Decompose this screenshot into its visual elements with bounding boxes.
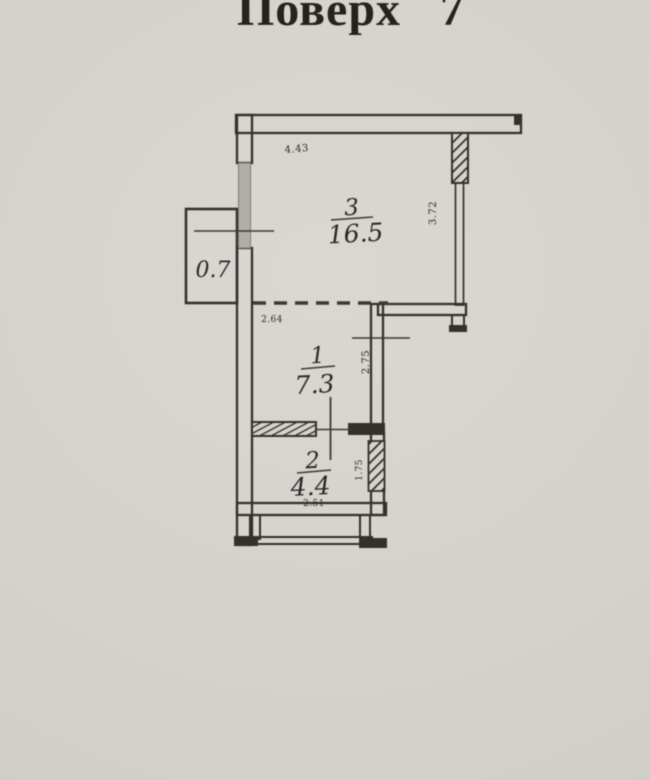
- balcony-outline: [186, 209, 237, 303]
- room2-area-label: 4.4: [289, 471, 331, 502]
- door-wall-hatch: [252, 422, 316, 436]
- room3-window-hatch: [452, 133, 468, 183]
- balcony-area-label: 0.7: [196, 258, 231, 283]
- right-wall-stub: [360, 515, 370, 539]
- room3-number-label: 3: [344, 195, 360, 222]
- room3-window: [456, 183, 464, 305]
- room1-area-label: 7.3: [294, 369, 335, 400]
- left-wall-upper: [237, 115, 252, 163]
- wall-stub-vertical: [452, 315, 464, 326]
- floor-plan-drawing: 3 16.5 4.43 3.72 0.7 1 7.3 2.64 2.75 2 4…: [0, 0, 650, 780]
- room2-width-dim: 2.51: [303, 499, 325, 509]
- room1-height-dim: 2.75: [361, 350, 372, 374]
- top-wall: [236, 115, 521, 133]
- room2-number-label: 2: [304, 448, 321, 475]
- scanned-floor-plan-page: Поверх 7: [0, 0, 650, 780]
- room1-width-dim: 2.64: [261, 315, 283, 325]
- bottom-right-cap: [359, 538, 387, 548]
- door-wall-solid: [348, 423, 385, 435]
- room1-right-wall: [371, 304, 383, 432]
- room2-height-dim: 1.75: [355, 459, 365, 481]
- room3-height-dim: 3.72: [428, 201, 439, 225]
- top-right-cap: [514, 115, 521, 125]
- room2-window-hatch: [369, 441, 385, 491]
- room3-width-dim: 4.43: [284, 143, 309, 156]
- wall-stub-cap: [449, 325, 467, 332]
- left-wall-lower: [237, 248, 252, 545]
- room3-area-label: 16.5: [327, 218, 384, 250]
- wall-stub-horizontal: [378, 304, 466, 315]
- room1-number-label: 1: [310, 343, 326, 370]
- bottom-left-cap: [234, 536, 258, 546]
- balcony-window-shade: [239, 163, 251, 248]
